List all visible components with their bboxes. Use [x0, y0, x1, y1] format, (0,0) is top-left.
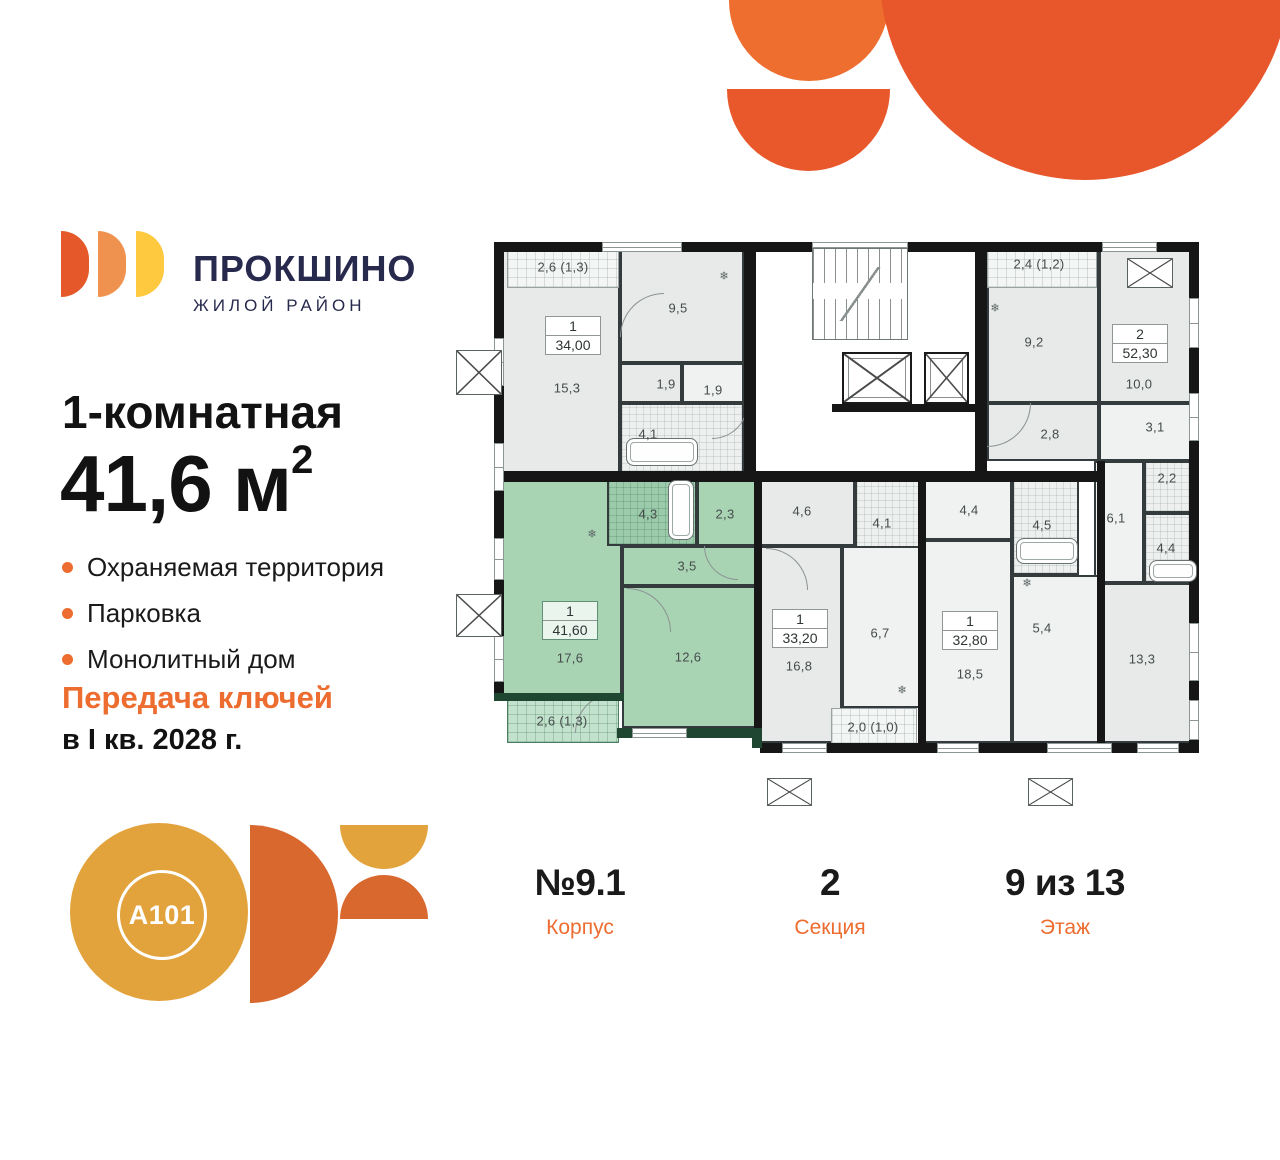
offer-area: 41,6 м2	[60, 438, 313, 530]
wall	[494, 471, 1102, 482]
apartment-badge: 252,30	[1112, 324, 1168, 363]
room-area-label: 4,1	[639, 427, 658, 442]
window	[937, 743, 979, 753]
room-area-label: 1,9	[657, 377, 676, 392]
room-area-label: 2,3	[716, 507, 735, 522]
window	[1189, 623, 1199, 681]
room	[1012, 575, 1100, 743]
wall	[832, 404, 975, 412]
promo-card: ПРОКШИНО ЖИЛОЙ РАЙОН 1-комнатная 41,6 м2…	[0, 0, 1280, 1160]
snowflake-icon: ❄	[719, 270, 728, 283]
apartment-badge: 134,00	[545, 316, 601, 355]
room-area-label: 2,0 (1,0)	[847, 720, 898, 735]
room-area-label: 15,3	[554, 381, 581, 396]
stairs-icon	[812, 248, 908, 340]
feature-item: Парковка	[62, 598, 384, 629]
room-area-label: 3,1	[1146, 420, 1165, 435]
window	[1189, 298, 1199, 348]
a101-ring-icon: A101	[117, 870, 207, 960]
deco-semicircle-small-bottom	[727, 89, 890, 171]
room-area-label: 6,1	[1107, 511, 1126, 526]
wall	[752, 728, 762, 748]
a101-circle-icon: A101	[70, 823, 248, 1001]
logo-arc-icon	[61, 231, 89, 297]
apartment-badge: 132,80	[942, 611, 998, 650]
apartment-rooms: 1	[543, 602, 597, 621]
bathtub-icon	[626, 438, 698, 466]
feature-list: Охраняемая территория Парковка Монолитны…	[62, 552, 384, 690]
brand-subtitle: ЖИЛОЙ РАЙОН	[193, 296, 416, 316]
a101-label: A101	[129, 900, 196, 931]
wall	[1097, 461, 1105, 743]
feature-item: Монолитный дом	[62, 644, 384, 675]
building-label: Корпус	[480, 916, 680, 940]
apartment-badge: 141,60	[542, 601, 598, 640]
apartment-badge: 133,20	[772, 609, 828, 648]
bathtub-icon	[1149, 560, 1197, 582]
room-area-label: 4,4	[960, 503, 979, 518]
bathtub-icon	[668, 480, 694, 540]
room-area-label: 4,6	[793, 504, 812, 519]
elevator-icon	[924, 352, 969, 404]
a101-semicircle-icon	[250, 825, 338, 1003]
deco-semicircle-small-top	[729, 0, 889, 81]
elevator-icon	[842, 352, 912, 404]
wall	[918, 478, 926, 743]
apartment-area: 34,00	[546, 336, 600, 354]
room-area-label: 18,5	[957, 667, 984, 682]
floor-number: 9 из 13	[955, 862, 1175, 904]
window	[1189, 700, 1199, 740]
feature-label: Монолитный дом	[87, 644, 296, 675]
apartment-rooms: 2	[1113, 325, 1167, 344]
apartment-rooms: 1	[546, 317, 600, 336]
section-label: Секция	[730, 916, 930, 940]
room-area-label: 1,9	[704, 383, 723, 398]
window	[632, 728, 687, 738]
room-area-label: 16,8	[786, 659, 813, 674]
building-number: №9.1	[480, 862, 680, 904]
room-area-label: 10,0	[1126, 377, 1153, 392]
bullet-dot-icon	[62, 562, 73, 573]
window	[1137, 743, 1179, 753]
window	[1047, 743, 1112, 753]
room-area-label: 5,4	[1033, 621, 1052, 636]
room-area-label: 4,4	[1157, 541, 1176, 556]
apartment-area: 33,20	[773, 629, 827, 647]
brand-title: ПРОКШИНО	[193, 248, 416, 290]
room-area-label: 9,2	[1025, 335, 1044, 350]
bathtub-icon	[1016, 538, 1078, 564]
window	[782, 743, 827, 753]
room-area-label: 17,6	[557, 651, 584, 666]
apartment-area: 52,30	[1113, 344, 1167, 362]
bullet-dot-icon	[62, 654, 73, 665]
window	[1189, 393, 1199, 441]
feature-label: Парковка	[87, 598, 201, 629]
wall	[975, 242, 987, 478]
vent-shaft-icon	[456, 350, 502, 395]
room-area-label: 2,6 (1,3)	[536, 714, 587, 729]
keys-handover-line2: в I кв. 2028 г.	[62, 724, 242, 757]
window	[494, 538, 504, 580]
apartment-area: 41,60	[543, 621, 597, 639]
snowflake-icon: ❄	[587, 528, 596, 541]
room-area-label: 9,5	[669, 301, 688, 316]
vent-shaft-icon	[767, 778, 812, 806]
room-area-label: 2,6 (1,3)	[537, 260, 588, 275]
window	[602, 242, 682, 252]
floor-label: Этаж	[955, 916, 1175, 940]
room-area-label: 2,2	[1158, 471, 1177, 486]
keys-handover-line1: Передача ключей	[62, 680, 333, 716]
area-value: 41,6	[60, 439, 212, 528]
room-area-label: 2,8	[1041, 427, 1060, 442]
room-area-label: 4,1	[873, 516, 892, 531]
logo-arc-icon	[98, 231, 126, 297]
floor-plan: ❄❄❄❄❄2,6 (1,3)9,515,31,91,94,12,4 (1,2)9…	[482, 238, 1202, 818]
window	[494, 636, 504, 682]
deco-circle-large	[880, 0, 1280, 180]
offer-title: 1-комнатная	[62, 385, 343, 439]
area-superscript: 2	[291, 438, 313, 482]
a101-small-semicircle-icon	[340, 825, 428, 869]
bullet-dot-icon	[62, 608, 73, 619]
footer-building: №9.1 Корпус	[480, 862, 680, 940]
wall	[494, 693, 624, 701]
vent-shaft-icon	[456, 594, 502, 637]
footer-floor: 9 из 13 Этаж	[955, 862, 1175, 940]
room-area-label: 6,7	[871, 626, 890, 641]
snowflake-icon: ❄	[1022, 577, 1031, 590]
section-number: 2	[730, 862, 930, 904]
vent-shaft-icon	[1028, 778, 1073, 806]
feature-item: Охраняемая территория	[62, 552, 384, 583]
room-area-label: 4,3	[639, 507, 658, 522]
window	[494, 443, 504, 491]
area-unit: м	[212, 439, 291, 528]
feature-label: Охраняемая территория	[87, 552, 384, 583]
wall	[744, 242, 756, 478]
snowflake-icon: ❄	[897, 684, 906, 697]
snowflake-icon: ❄	[990, 302, 999, 315]
vent-shaft-icon	[1127, 258, 1173, 288]
wall	[754, 478, 762, 743]
logo-arc-icon	[136, 231, 164, 297]
footer-section: 2 Секция	[730, 862, 930, 940]
apartment-rooms: 1	[943, 612, 997, 631]
room-area-label: 3,5	[678, 559, 697, 574]
apartment-rooms: 1	[773, 610, 827, 629]
room-area-label: 12,6	[675, 650, 702, 665]
room-area-label: 2,4 (1,2)	[1013, 257, 1064, 272]
apartment-area: 32,80	[943, 631, 997, 649]
window	[1102, 242, 1157, 252]
room-area-label: 4,5	[1033, 518, 1052, 533]
a101-small-semicircle-icon	[340, 875, 428, 919]
room-area-label: 13,3	[1129, 652, 1156, 667]
